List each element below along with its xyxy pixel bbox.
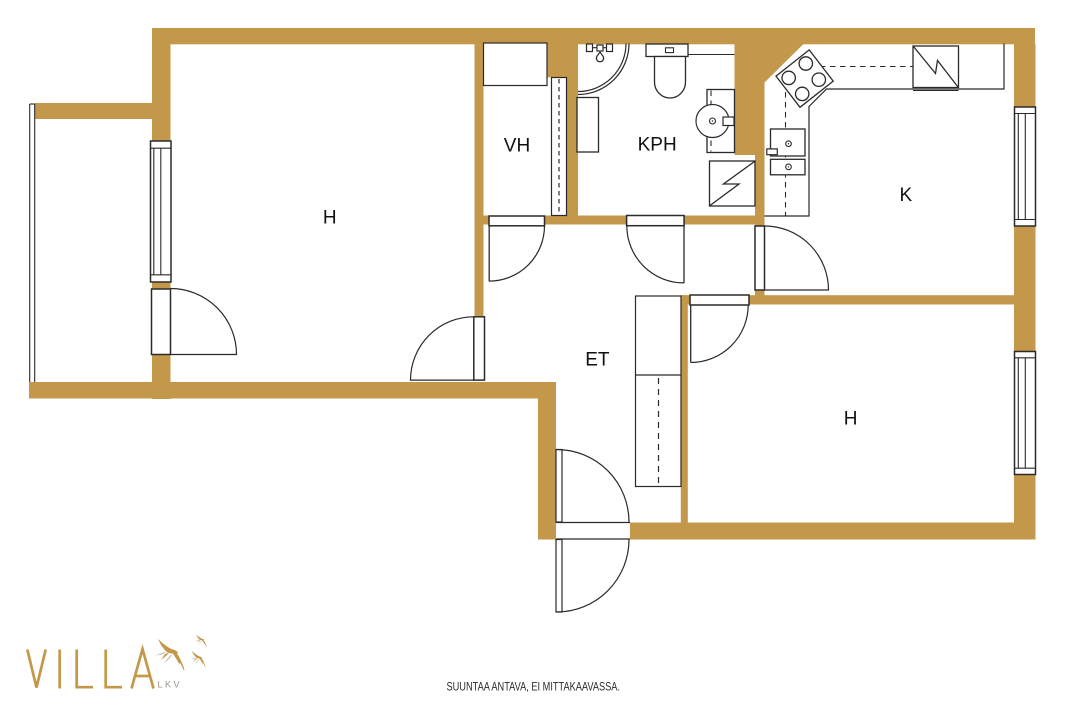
svg-text:VH: VH [504, 136, 530, 157]
svg-text:K: K [900, 185, 913, 206]
svg-text:H: H [844, 408, 858, 429]
svg-text:H: H [323, 208, 337, 229]
svg-text:KPH: KPH [638, 134, 677, 155]
svg-text:ET: ET [585, 349, 610, 370]
svg-text:LKV: LKV [158, 680, 183, 690]
svg-text:SUUNTAA ANTAVA, EI MITTAKAAVAS: SUUNTAA ANTAVA, EI MITTAKAAVASSA. [447, 681, 621, 694]
